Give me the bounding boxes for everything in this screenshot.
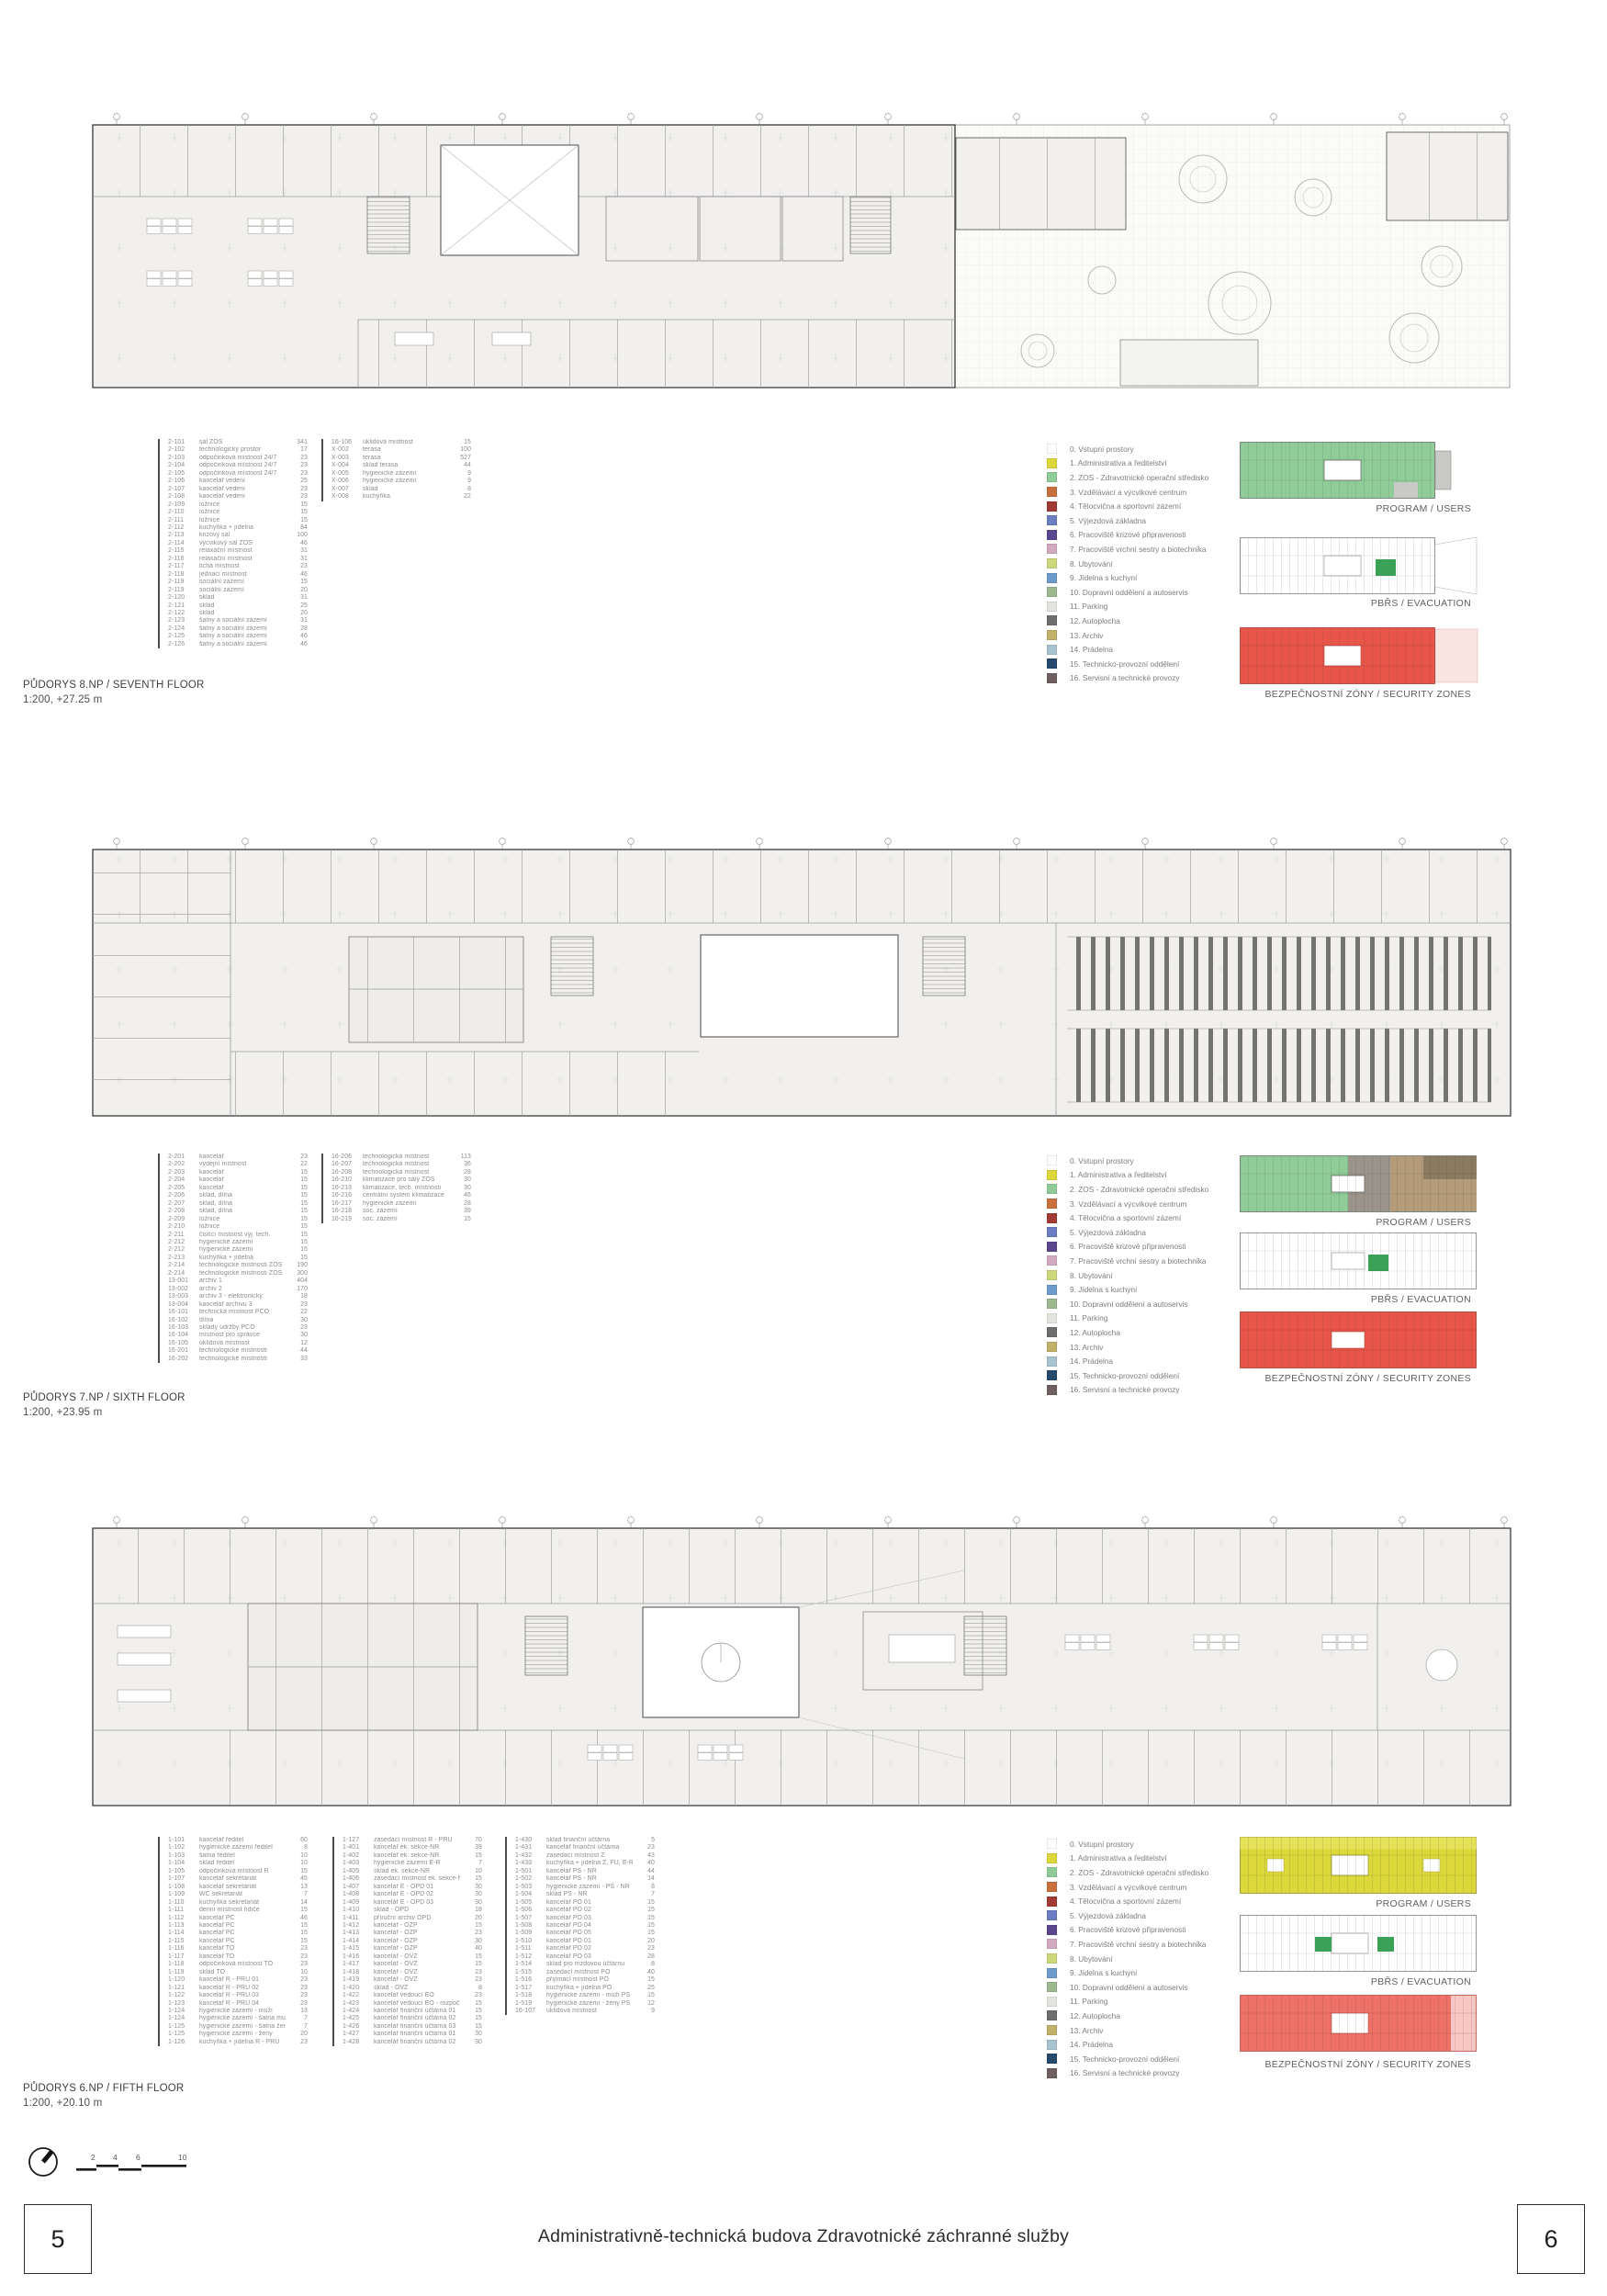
- room-area: 23: [633, 1945, 655, 1953]
- room-area: 22: [286, 1161, 308, 1168]
- room-id: 16-103: [168, 1324, 199, 1332]
- room-name: zasedací místnost ek. sekce-NŘ: [374, 1875, 460, 1883]
- room-area: 15: [286, 509, 308, 516]
- legend-label: 0. Vstupní prostory: [1070, 1156, 1134, 1165]
- room-row: 2-205 kancelář 15: [168, 1185, 308, 1192]
- room-row: 1-121 kancelář Ř - PŘU 02 23: [168, 1985, 308, 1992]
- room-row: 2-119 sociální zázemí 15: [168, 579, 308, 586]
- room-id: 1-420: [343, 1985, 374, 1992]
- room-row: 1-418 kancelář - OVZ 23: [343, 1969, 482, 1976]
- room-area: 45: [286, 1875, 308, 1883]
- room-area: 46: [286, 633, 308, 640]
- room-area: 13: [286, 1884, 308, 1891]
- room-name: šatny a sociální zázemí: [199, 641, 286, 648]
- room-name: hygienické zázemí - muži: [199, 2008, 286, 2015]
- room-area: 23: [286, 1985, 308, 1992]
- room-area: 23: [286, 563, 308, 570]
- room-id: 16-102: [168, 1317, 199, 1324]
- room-id: 1-432: [515, 1852, 546, 1860]
- legend-item: 3. Vzdělávací a výcvikové centrum: [1047, 485, 1231, 500]
- room-row: 1-124 hygienické zázemí - šatna muži 7: [168, 2015, 308, 2022]
- legend-swatch: [1047, 1939, 1057, 1949]
- room-id: X-008: [332, 493, 363, 501]
- room-name: výcvikový sál ZOS: [199, 540, 286, 547]
- room-area: 14: [633, 1875, 655, 1883]
- legend-swatch: [1047, 587, 1057, 597]
- room-name: kancelář - OVZ: [374, 1969, 460, 1976]
- room-row: 1-116 kancelář TO 23: [168, 1945, 308, 1953]
- room-row: 2-111 ložnice 15: [168, 517, 308, 524]
- legend-swatch: [1047, 2040, 1057, 2050]
- room-area: 10: [286, 1852, 308, 1860]
- room-name: technologické místnosti: [199, 1356, 286, 1363]
- room-name: kancelář PS - NŘ: [546, 1868, 633, 1875]
- room-row: 1-510 kancelář PO 01 20: [515, 1938, 655, 1945]
- room-row: 1-104 sklad ředitel 10: [168, 1860, 308, 1867]
- room-area: 8: [633, 1884, 655, 1891]
- room-row: 1-124 hygienické zázemí - muži 13: [168, 2008, 308, 2015]
- legend-swatch: [1047, 2068, 1057, 2078]
- legend-label: 4. Tělocvična a sportovní zázemí: [1070, 1213, 1181, 1222]
- room-area: 15: [286, 1922, 308, 1930]
- room-area: 14: [286, 1899, 308, 1907]
- room-id: 1-125: [168, 2023, 199, 2031]
- room-row: 1-426 kancelář finanční účtárna 03 15: [343, 2023, 482, 2031]
- room-id: 2-116: [168, 556, 199, 563]
- room-id: 2-209: [168, 1216, 199, 1223]
- room-name: kuchyňka: [363, 493, 449, 501]
- room-id: 2-208: [168, 1208, 199, 1215]
- evacuation-label-7np: PBŘS / EVACUATION: [1231, 1294, 1471, 1305]
- room-area: 8: [449, 486, 471, 493]
- legend-label: 11. Parking: [1070, 1313, 1107, 1322]
- legend-item: 16. Servisní a technické provozy: [1047, 2066, 1231, 2081]
- legend-label: 4. Tělocvična a sportovní zázemí: [1070, 501, 1181, 511]
- room-id: 1-519: [515, 2000, 546, 2008]
- mini-plan-8np-program: [1240, 442, 1478, 499]
- room-name: technologická místnost: [363, 1154, 449, 1161]
- mini-plan-7np-program: [1240, 1155, 1478, 1212]
- room-name: terasa: [363, 446, 449, 454]
- room-name: hygienické zázemí: [199, 1246, 286, 1254]
- room-row: 16-208 technologická místnost 28: [332, 1169, 471, 1176]
- room-id: 2-117: [168, 563, 199, 570]
- legend-item: 4. Tělocvična a sportovní zázemí: [1047, 1210, 1231, 1225]
- scale-tick-label: 6: [136, 2153, 140, 2162]
- room-id: 1-422: [343, 1992, 374, 1999]
- room-name: přijímací místnost PO: [546, 1976, 633, 1984]
- room-name: hygienické zázemí - PS - NŘ: [546, 1884, 633, 1891]
- room-name: archiv 2: [199, 1286, 286, 1293]
- room-id: 16-104: [168, 1332, 199, 1339]
- room-row: 2-126 šatny a sociální zázemí 46: [168, 641, 308, 648]
- room-area: 100: [286, 532, 308, 539]
- legend-item: 12. Autoplocha: [1047, 2009, 1231, 2023]
- legend-swatch: [1047, 1925, 1057, 1935]
- room-name: dílna: [199, 1317, 286, 1324]
- room-id: 2-118: [168, 571, 199, 579]
- room-area: 23: [286, 462, 308, 469]
- room-area: 5: [633, 1837, 655, 1844]
- room-id: 2-214: [168, 1270, 199, 1277]
- room-name: kancelář PO 03: [546, 1915, 633, 1922]
- security-zones-label-8np: BEZPEČNOSTNÍ ZÓNY / SECURITY ZONES: [1231, 689, 1471, 700]
- room-row: 2-208 sklad, dílna 15: [168, 1208, 308, 1215]
- room-row: 1-424 kancelář finanční účtárna 01 15: [343, 2008, 482, 2015]
- room-area: 20: [286, 2031, 308, 2038]
- room-area: 31: [286, 617, 308, 625]
- room-row: 2-121 sklad 25: [168, 602, 308, 610]
- room-row: 2-207 sklad, dílna 15: [168, 1200, 308, 1208]
- room-name: kancelář vedení: [199, 478, 286, 485]
- room-area: 15: [286, 501, 308, 509]
- room-name: klimatizace pro sály ZOS: [363, 1176, 449, 1184]
- room-id: 2-202: [168, 1161, 199, 1168]
- room-id: 1-403: [343, 1860, 374, 1867]
- room-row: 1-123 kancelář Ř - PŘU 04 23: [168, 2000, 308, 2008]
- room-name: ložnice: [199, 501, 286, 509]
- room-row: 2-124 šatny a sociální zázemí 28: [168, 625, 308, 633]
- legend-label: 15. Technicko-provozní oddělení: [1070, 659, 1179, 669]
- room-id: 2-110: [168, 509, 199, 516]
- program-users-label-7np: PROGRAM / USERS: [1231, 1217, 1471, 1228]
- mini-plan-8np-evacuation: [1240, 537, 1478, 594]
- room-name: archiv 1: [199, 1277, 286, 1285]
- legend-label: 7. Pracoviště vrchní sestry a biotechnik…: [1070, 545, 1207, 554]
- legend-swatch: [1047, 1213, 1057, 1223]
- room-id: 1-411: [343, 1915, 374, 1922]
- room-id: 1-431: [515, 1844, 546, 1851]
- room-area: 15: [286, 1907, 308, 1914]
- room-area: 30: [286, 1317, 308, 1324]
- room-id: 2-103: [168, 455, 199, 462]
- room-id: 1-109: [168, 1891, 199, 1898]
- room-id: 1-426: [343, 2023, 374, 2031]
- room-id: 1-406: [343, 1875, 374, 1883]
- room-name: kancelář PC: [199, 1922, 286, 1930]
- room-row: 1-125 hygienické zázemí - ženy 20: [168, 2031, 308, 2038]
- room-id: 1-126: [168, 2039, 199, 2046]
- room-id: 1-511: [515, 1945, 546, 1953]
- room-name: kancelář Ř - PŘU 01: [199, 1976, 286, 1984]
- legend-label: 1. Administrativa a ředitelství: [1070, 458, 1167, 467]
- room-row: 2-103 odpočinková místnost 24/7 23: [168, 455, 308, 462]
- legend-swatch: [1047, 673, 1057, 683]
- room-row: 2-209 ložnice 15: [168, 1216, 308, 1223]
- room-id: 1-121: [168, 1985, 199, 1992]
- room-id: 2-104: [168, 462, 199, 469]
- mini-plan-6np-program: [1240, 1837, 1478, 1894]
- room-row: 1-519 hygienické zázemí - ženy PS 12: [515, 2000, 655, 2008]
- room-row: 1-416 kancelář - OVZ 15: [343, 1953, 482, 1961]
- room-name: kancelář E - OPD 03: [374, 1899, 460, 1907]
- room-name: kancelář - OVZ: [374, 1953, 460, 1961]
- evacuation-label-6np: PBŘS / EVACUATION: [1231, 1976, 1471, 1987]
- room-row: 1-419 kancelář - OVZ 23: [343, 1976, 482, 1984]
- room-row: 1-512 kancelář PO 03 28: [515, 1953, 655, 1961]
- room-name: kancelář finanční účtárna 02: [374, 2039, 460, 2046]
- room-name: odpočinková místnost Ř: [199, 1868, 286, 1875]
- room-row: X-007 sklad 8: [332, 486, 471, 493]
- room-row: 1-407 kancelář E - OPD 01 30: [343, 1884, 482, 1891]
- room-row: 16-102 dílna 30: [168, 1317, 308, 1324]
- room-row: 1-410 sklad - OPD 18: [343, 1907, 482, 1914]
- room-name: výdejní místnost: [199, 1161, 286, 1168]
- room-name: kancelář PC: [199, 1938, 286, 1945]
- room-name: hygienické zázemí - ženy PS: [546, 2000, 633, 2008]
- room-row: 2-204 kancelář 15: [168, 1176, 308, 1184]
- room-row: 1-113 kancelář PC 15: [168, 1922, 308, 1930]
- room-name: technologické místnosti ZOS: [199, 1270, 286, 1277]
- zoning-legend-6np: 0. Vstupní prostory 1. Administrativa a …: [1047, 1837, 1231, 2080]
- room-id: 1-418: [343, 1969, 374, 1976]
- room-area: 15: [286, 1239, 308, 1246]
- room-area: 25: [633, 1985, 655, 1992]
- room-name: úklidová místnost: [199, 1340, 286, 1347]
- room-name: sklad TO: [199, 1969, 286, 1976]
- room-id: 1-112: [168, 1915, 199, 1922]
- legend-swatch: [1047, 530, 1057, 540]
- room-id: 2-119: [168, 579, 199, 586]
- room-area: 22: [286, 1309, 308, 1316]
- room-schedule-7np-col1: 2-201 kancelář 23 2-202 výdejní místnost…: [158, 1154, 308, 1363]
- legend-item: 16. Servisní a technické provozy: [1047, 671, 1231, 686]
- room-name: zasedací místnost PO: [546, 1969, 633, 1976]
- room-id: 16-107: [515, 2008, 546, 2015]
- room-row: 16-105 úklidová místnost 12: [168, 1340, 308, 1347]
- room-area: 23: [286, 1945, 308, 1953]
- floor-subtitle-text: 1:200, +20.10 m: [23, 2098, 184, 2109]
- room-row: 1-126 kuchyňka + jídelna Ř - PŘU 23: [168, 2039, 308, 2046]
- room-area: 25: [286, 602, 308, 610]
- room-id: 1-419: [343, 1976, 374, 1984]
- room-id: 2-206: [168, 1192, 199, 1199]
- room-schedule-6np-col1: 1-101 kancelář ředitel 60 1-102 hygienic…: [158, 1837, 308, 2046]
- room-row: 2-211 čistící místnost výj. tech. 15: [168, 1232, 308, 1239]
- legend-label: 4. Tělocvična a sportovní zázemí: [1070, 1896, 1181, 1906]
- legend-item: 15. Technicko-provozní oddělení: [1047, 1368, 1231, 1383]
- room-row: 1-425 kancelář finanční účtárna 02 15: [343, 2015, 482, 2022]
- room-id: 13-004: [168, 1301, 199, 1309]
- legend-label: 5. Výjezdová základna: [1070, 1911, 1146, 1920]
- room-id: 1-409: [343, 1899, 374, 1907]
- legend-item: 10. Dopravní oddělení a autoservis: [1047, 585, 1231, 600]
- room-id: 1-410: [343, 1907, 374, 1914]
- room-area: 15: [460, 1953, 482, 1961]
- room-row: 13-003 archiv 3 - elektronický 18: [168, 1293, 308, 1300]
- room-name: sociální zázemí: [199, 587, 286, 594]
- room-id: 1-415: [343, 1945, 374, 1953]
- room-name: kancelář - OZP: [374, 1922, 460, 1930]
- room-name: hygienické zázemí E-Ř: [374, 1860, 460, 1867]
- room-name: archiv 3 - elektronický: [199, 1293, 286, 1300]
- room-row: 1-508 kancelář PO 04 15: [515, 1922, 655, 1930]
- room-name: šatny a sociální zázemí: [199, 617, 286, 625]
- floor-subtitle-text: 1:200, +23.95 m: [23, 1407, 185, 1418]
- legend-label: 15. Technicko-provozní oddělení: [1070, 1371, 1179, 1380]
- room-row: 1-401 kancelář ek. sekce-NŘ 39: [343, 1844, 482, 1851]
- room-id: 2-105: [168, 470, 199, 478]
- room-id: 1-124: [168, 2008, 199, 2015]
- legend-swatch: [1047, 1953, 1057, 1964]
- room-area: 20: [633, 1938, 655, 1945]
- floor-title-7np: PŮDORYS 7.NP / SIXTH FLOOR 1:200, +23.95…: [23, 1392, 185, 1418]
- room-id: 2-214: [168, 1262, 199, 1269]
- room-area: 44: [633, 1868, 655, 1875]
- legend-item: 8. Ubytování: [1047, 1952, 1231, 1966]
- room-name: kancelář finanční účtárna: [546, 1844, 633, 1851]
- room-id: 16-216: [332, 1192, 363, 1199]
- room-area: 15: [286, 517, 308, 524]
- security-zones-label-6np: BEZPEČNOSTNÍ ZÓNY / SECURITY ZONES: [1231, 2059, 1471, 2070]
- room-area: 44: [449, 462, 471, 469]
- room-row: X-004 sklad terasa 44: [332, 462, 471, 469]
- room-name: sál ZOS: [199, 439, 286, 446]
- room-area: 23: [286, 1992, 308, 1999]
- legend-swatch: [1047, 1968, 1057, 1978]
- room-name: kancelář PC: [199, 1930, 286, 1937]
- room-name: kancelář: [199, 1176, 286, 1184]
- room-id: 1-502: [515, 1875, 546, 1883]
- room-row: 1-119 sklad TO 10: [168, 1969, 308, 1976]
- program-users-label-8np: PROGRAM / USERS: [1231, 503, 1471, 514]
- legend-swatch: [1047, 1270, 1057, 1280]
- room-name: kancelář - OZP: [374, 1930, 460, 1937]
- room-area: 15: [460, 2000, 482, 2008]
- legend-label: 7. Pracoviště vrchní sestry a biotechnik…: [1070, 1940, 1207, 1949]
- room-area: 23: [286, 1976, 308, 1984]
- room-row: 1-430 sklad finanční účtárna 5: [515, 1837, 655, 1844]
- room-name: sklad ředitel: [199, 1860, 286, 1867]
- legend-label: 2. ZOS - Zdravotnické operační středisko: [1070, 1868, 1208, 1877]
- room-row: 16-217 hygienické zázemí 28: [332, 1200, 471, 1208]
- legend-label: 10. Dopravní oddělení a autoservis: [1070, 1983, 1188, 1992]
- room-area: 30: [286, 1332, 308, 1339]
- legend-item: 7. Pracoviště vrchní sestry a biotechnik…: [1047, 1937, 1231, 1952]
- room-id: 1-408: [343, 1891, 374, 1898]
- scale-bar-graphic: [76, 2164, 196, 2173]
- legend-swatch: [1047, 1327, 1057, 1337]
- room-row: 1-423 kancelář vedoucí EO - rozpočtář 15: [343, 2000, 482, 2008]
- room-row: 1-509 kancelář PO 05 15: [515, 1930, 655, 1937]
- room-name: kancelář vedoucí EO - rozpočtář: [374, 2000, 460, 2008]
- room-name: kancelář finanční účtárna 03: [374, 2023, 460, 2031]
- room-id: 13-003: [168, 1293, 199, 1300]
- room-area: 170: [286, 1286, 308, 1293]
- room-id: 1-508: [515, 1922, 546, 1930]
- room-name: soc. zázemí: [363, 1216, 449, 1223]
- room-area: 190: [286, 1262, 308, 1269]
- legend-swatch: [1047, 472, 1057, 482]
- room-id: 2-109: [168, 501, 199, 509]
- legend-swatch: [1047, 558, 1057, 568]
- room-name: zasedací místnost Z: [546, 1852, 633, 1860]
- room-name: šatny a sociální zázemí: [199, 633, 286, 640]
- legend-label: 9. Jídelna s kuchyní: [1070, 1285, 1137, 1294]
- room-row: 1-504 sklad PS - NŘ 7: [515, 1891, 655, 1898]
- legend-item: 0. Vstupní prostory: [1047, 1837, 1231, 1851]
- legend-label: 5. Výjezdová základna: [1070, 1228, 1146, 1237]
- legend-item: 15. Technicko-provozní oddělení: [1047, 2052, 1231, 2066]
- legend-swatch: [1047, 2010, 1057, 2020]
- room-id: 16-208: [332, 1169, 363, 1176]
- room-id: X-005: [332, 470, 363, 478]
- legend-swatch: [1047, 645, 1057, 655]
- room-name: hygienické zázemí - šatna ženy: [199, 2023, 286, 2031]
- room-row: 16-218 soc. zázemí 39: [332, 1208, 471, 1215]
- room-row: 13-002 archiv 2 170: [168, 1286, 308, 1293]
- room-area: 46: [286, 571, 308, 579]
- room-area: 12: [633, 2000, 655, 2008]
- room-name: sklad ek. sekce-NŘ: [374, 1868, 460, 1875]
- room-name: kancelář finanční účtárna 01: [374, 2031, 460, 2038]
- room-row: 2-212 hygienické zázemí 15: [168, 1239, 308, 1246]
- room-row: 16-216 centrální systém klimatizace 46: [332, 1192, 471, 1199]
- legend-label: 9. Jídelna s kuchyní: [1070, 573, 1137, 582]
- room-area: 12: [286, 1340, 308, 1347]
- room-row: 1-514 sklad pro mzdovou účtárnu 8: [515, 1961, 655, 1968]
- room-row: 16-201 technologické místnosti 44: [168, 1347, 308, 1355]
- room-area: 15: [286, 1868, 308, 1875]
- room-row: 16-107 úklidová místnost 9: [515, 2008, 655, 2015]
- room-name: kancelář TO: [199, 1953, 286, 1961]
- room-id: 1-504: [515, 1891, 546, 1898]
- room-name: tichá místnost: [199, 563, 286, 570]
- room-id: 1-412: [343, 1922, 374, 1930]
- room-area: 40: [633, 1860, 655, 1867]
- legend-swatch: [1047, 1342, 1057, 1352]
- room-area: 30: [460, 1899, 482, 1907]
- legend-label: 12. Autoplocha: [1070, 616, 1120, 625]
- room-area: 28: [286, 625, 308, 633]
- room-id: 1-507: [515, 1915, 546, 1922]
- room-area: 7: [286, 2015, 308, 2022]
- legend-swatch: [1047, 1299, 1057, 1309]
- legend-item: 9. Jídelna s kuchyní: [1047, 1282, 1231, 1297]
- room-area: 9: [633, 2008, 655, 2015]
- room-id: 1-101: [168, 1837, 199, 1844]
- room-area: 23: [460, 1930, 482, 1937]
- room-name: odpočinková místnost 24/7: [199, 470, 286, 478]
- room-id: 1-402: [343, 1852, 374, 1860]
- legend-swatch: [1047, 458, 1057, 468]
- room-id: 2-111: [168, 517, 199, 524]
- room-name: sklady údržby PCO: [199, 1324, 286, 1332]
- room-name: hygienické zázemí: [363, 470, 449, 478]
- room-area: 84: [286, 524, 308, 532]
- room-id: 1-433: [515, 1860, 546, 1867]
- room-name: kancelář vedení: [199, 493, 286, 501]
- room-area: 8: [286, 1844, 308, 1851]
- room-area: 15: [633, 1992, 655, 1999]
- legend-swatch: [1047, 1170, 1057, 1180]
- floor-title-6np: PŮDORYS 6.NP / FIFTH FLOOR 1:200, +20.10…: [23, 2083, 184, 2109]
- room-area: 15: [286, 1938, 308, 1945]
- room-area: 30: [460, 2039, 482, 2046]
- room-row: 2-123 šatny a sociální zázemí 31: [168, 617, 308, 625]
- room-area: 15: [286, 1169, 308, 1176]
- room-area: 18: [286, 1293, 308, 1300]
- room-name: WC sekretariát: [199, 1891, 286, 1898]
- floor-title-8np: PŮDORYS 8.NP / SEVENTH FLOOR 1:200, +27.…: [23, 680, 205, 705]
- mini-plan-6np-evacuation: [1240, 1915, 1478, 1972]
- room-id: 2-203: [168, 1169, 199, 1176]
- room-id: 2-114: [168, 540, 199, 547]
- room-id: 1-510: [515, 1938, 546, 1945]
- evacuation-label-8np: PBŘS / EVACUATION: [1231, 598, 1471, 609]
- room-id: 2-119: [168, 587, 199, 594]
- legend-swatch: [1047, 1242, 1057, 1252]
